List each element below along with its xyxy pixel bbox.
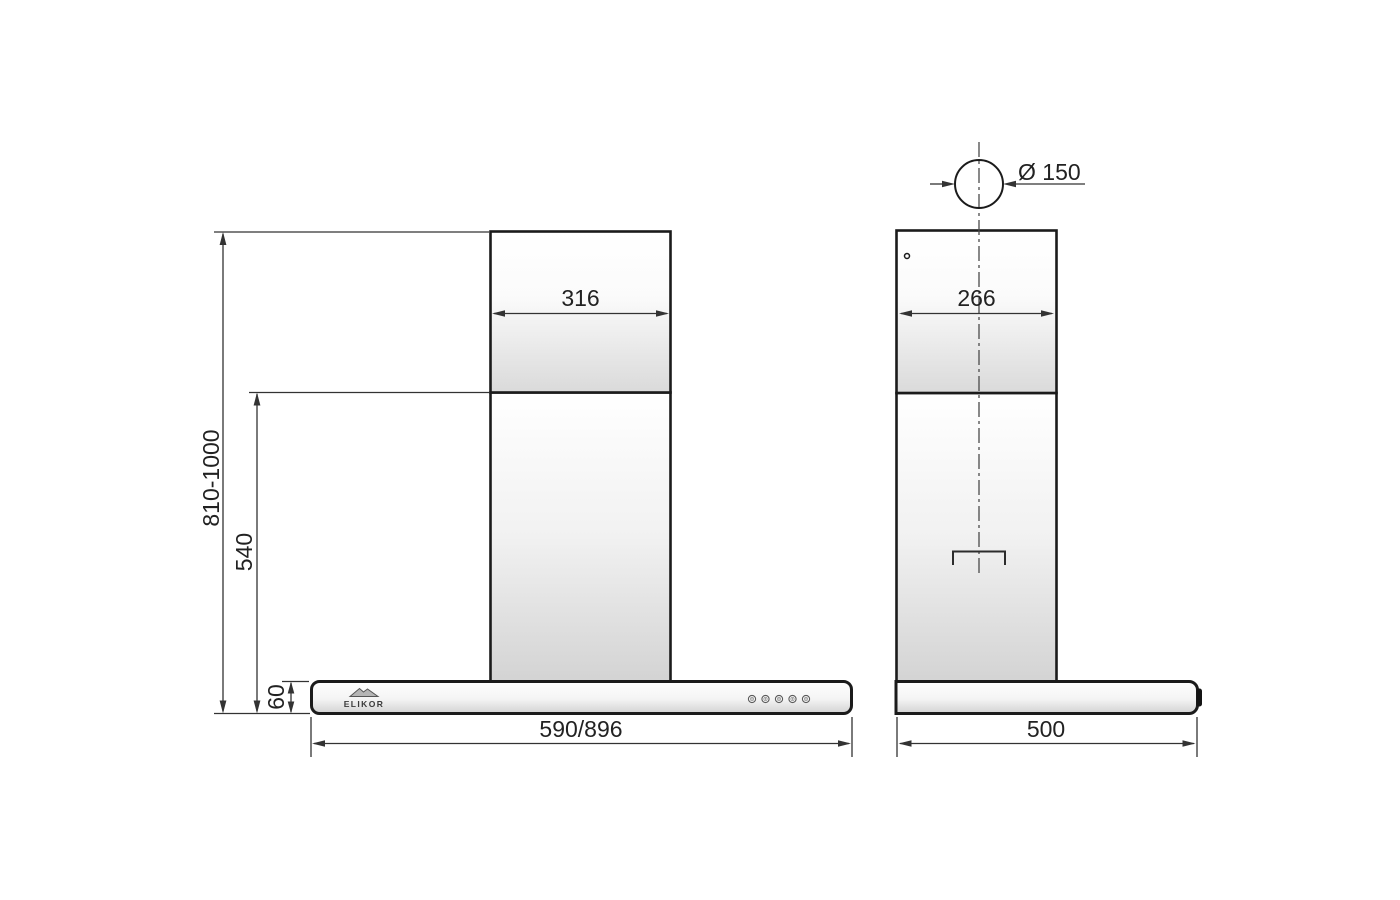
dim-chimney-height: 540 bbox=[231, 393, 489, 714]
rear-tab bbox=[1197, 689, 1203, 707]
brand-wordmark: ELIKOR bbox=[344, 699, 385, 709]
side-view bbox=[896, 142, 1202, 714]
dim-label-body-depth: 500 bbox=[1027, 716, 1065, 742]
technical-drawing-canvas: ELIKOR bbox=[0, 0, 1400, 900]
front-hood-body bbox=[312, 682, 852, 714]
dim-label-chimney-depth: 266 bbox=[957, 285, 995, 311]
dim-height-range: 810-1000 bbox=[198, 232, 489, 714]
dim-body-height: 60 bbox=[263, 682, 309, 714]
side-chimney-upper-section bbox=[897, 231, 1057, 394]
dim-label-chimney-width: 316 bbox=[561, 285, 599, 311]
dim-label-height-range: 810-1000 bbox=[198, 429, 224, 526]
control-button bbox=[748, 695, 755, 702]
front-chimney-upper-section bbox=[491, 232, 671, 393]
side-hood-body bbox=[896, 682, 1198, 714]
front-chimney-lower-section bbox=[491, 393, 671, 683]
dim-outlet-diameter: Ø 150 bbox=[930, 159, 1085, 187]
screw-hole bbox=[905, 254, 910, 259]
control-button bbox=[775, 695, 782, 702]
control-button bbox=[762, 695, 769, 702]
dim-label-body-width: 590/896 bbox=[539, 716, 622, 742]
control-button bbox=[789, 695, 796, 702]
dim-label-body-height: 60 bbox=[263, 684, 289, 710]
dim-label-chimney-height: 540 bbox=[231, 533, 257, 571]
dim-body-width: 590/896 bbox=[311, 716, 852, 757]
control-button bbox=[802, 695, 809, 702]
dim-label-outlet-diameter: Ø 150 bbox=[1018, 159, 1081, 185]
hood-dimension-drawing: ELIKOR bbox=[0, 0, 1400, 900]
side-chimney-lower-section bbox=[897, 393, 1057, 683]
dim-body-depth: 500 bbox=[897, 716, 1197, 757]
